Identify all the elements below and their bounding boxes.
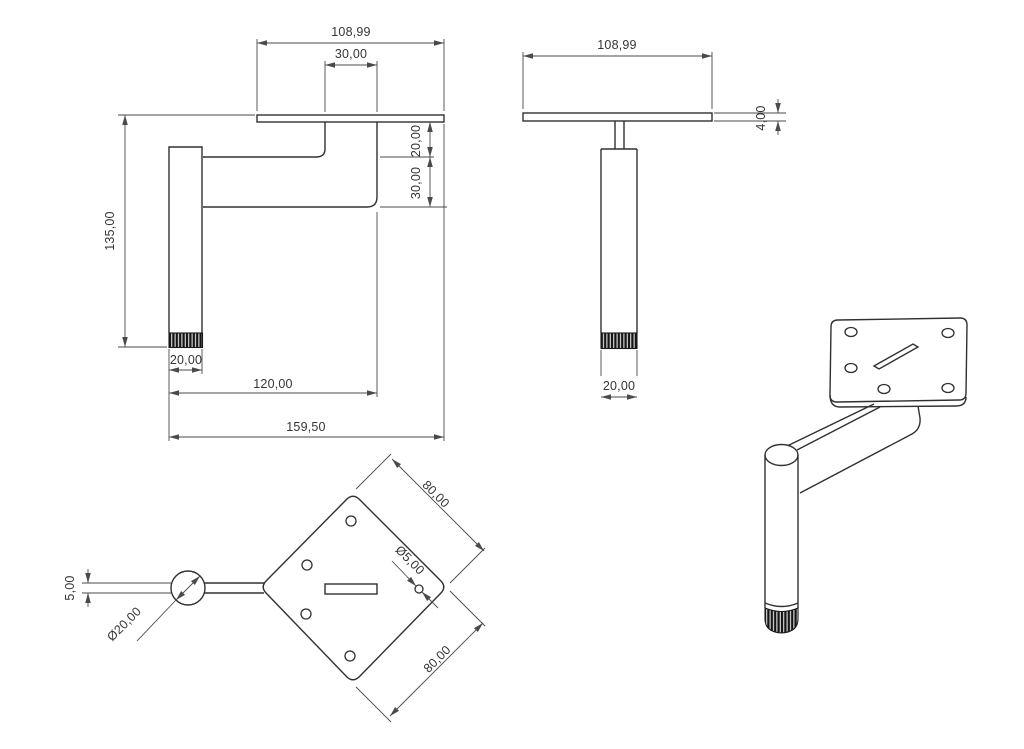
iso-knurled-foot: [765, 608, 798, 633]
side-stem: [615, 121, 624, 149]
side-knurled-foot: [601, 333, 637, 349]
front-view: 108,99 30,00 20,00 30,00 135,00 20,00 12…: [103, 25, 447, 441]
side-view: 108,99 4,00 20,00: [523, 38, 786, 397]
front-leg-tube: [169, 147, 202, 333]
side-foot-ext: [601, 350, 637, 376]
iso-tube-sides: [765, 455, 798, 608]
front-arm-top-edge: [203, 122, 325, 157]
dim-front-overall-width: 159,50: [286, 420, 325, 434]
dim-side-plate-thickness: 4,00: [754, 105, 768, 130]
top-view: 5,00 Ø20,00 Ø5,00 80,00 80,00: [63, 454, 485, 722]
side-leg-tube: [601, 149, 637, 333]
top-hole-1: [346, 516, 356, 526]
side-plate: [523, 113, 712, 121]
dim-front-stem-width: 30,00: [335, 47, 367, 61]
top-hole-4: [345, 651, 355, 661]
front-stem-width-ext: [325, 61, 377, 112]
iso-tube-top: [765, 445, 798, 466]
top-hole-3: [301, 609, 311, 619]
dim-side-plate-width: 108,99: [597, 38, 636, 52]
side-plate-width-ext: [523, 52, 712, 109]
dim-front-plate-to-arm: 20,00: [409, 125, 423, 157]
iso-arm-edge-1: [785, 404, 874, 447]
top-arm-width-ext: [82, 583, 171, 593]
side-thickness-ext: [714, 113, 786, 121]
front-plate: [257, 115, 444, 122]
iso-hole-2: [942, 329, 954, 338]
dim-side-foot-width: 20,00: [603, 379, 635, 393]
iso-hole-5: [942, 384, 954, 393]
iso-hole-3: [845, 364, 857, 373]
top-arm: [204, 583, 264, 593]
technical-drawing-canvas: 108,99 30,00 20,00 30,00 135,00 20,00 12…: [0, 0, 1024, 749]
front-arm-bottom-edge: [203, 122, 377, 207]
top-hole-2: [302, 560, 312, 570]
iso-hole-1: [845, 328, 857, 337]
dim-front-foot-width: 20,00: [170, 353, 202, 367]
dim-top-arm-width: 5,00: [63, 575, 77, 600]
front-knurled-foot: [169, 333, 203, 348]
dim-front-leg-to-stem: 120,00: [253, 377, 292, 391]
dim-front-plate-width: 108,99: [331, 25, 370, 39]
dim-top-tube-diameter: Ø20,00: [104, 604, 144, 644]
top-tube-dia-leader: [137, 600, 176, 641]
top-hole-5mm: [415, 585, 423, 593]
iso-arm-edge-bottom: [800, 406, 920, 493]
dim-top-edge-upper: 80,00: [419, 478, 452, 511]
iso-hole-4: [878, 385, 890, 394]
iso-arm-edge-2: [797, 407, 880, 450]
drawing-svg: 108,99 30,00 20,00 30,00 135,00 20,00 12…: [0, 0, 1024, 749]
front-height-ext: [118, 115, 255, 347]
dim-top-edge-lower: 80,00: [421, 643, 454, 676]
dim-front-arm-height: 30,00: [409, 167, 423, 199]
top-slot: [325, 584, 377, 594]
iso-foot-top-edge: [765, 603, 798, 607]
isometric-view: [765, 318, 967, 633]
dim-front-overall-height: 135,00: [103, 211, 117, 250]
